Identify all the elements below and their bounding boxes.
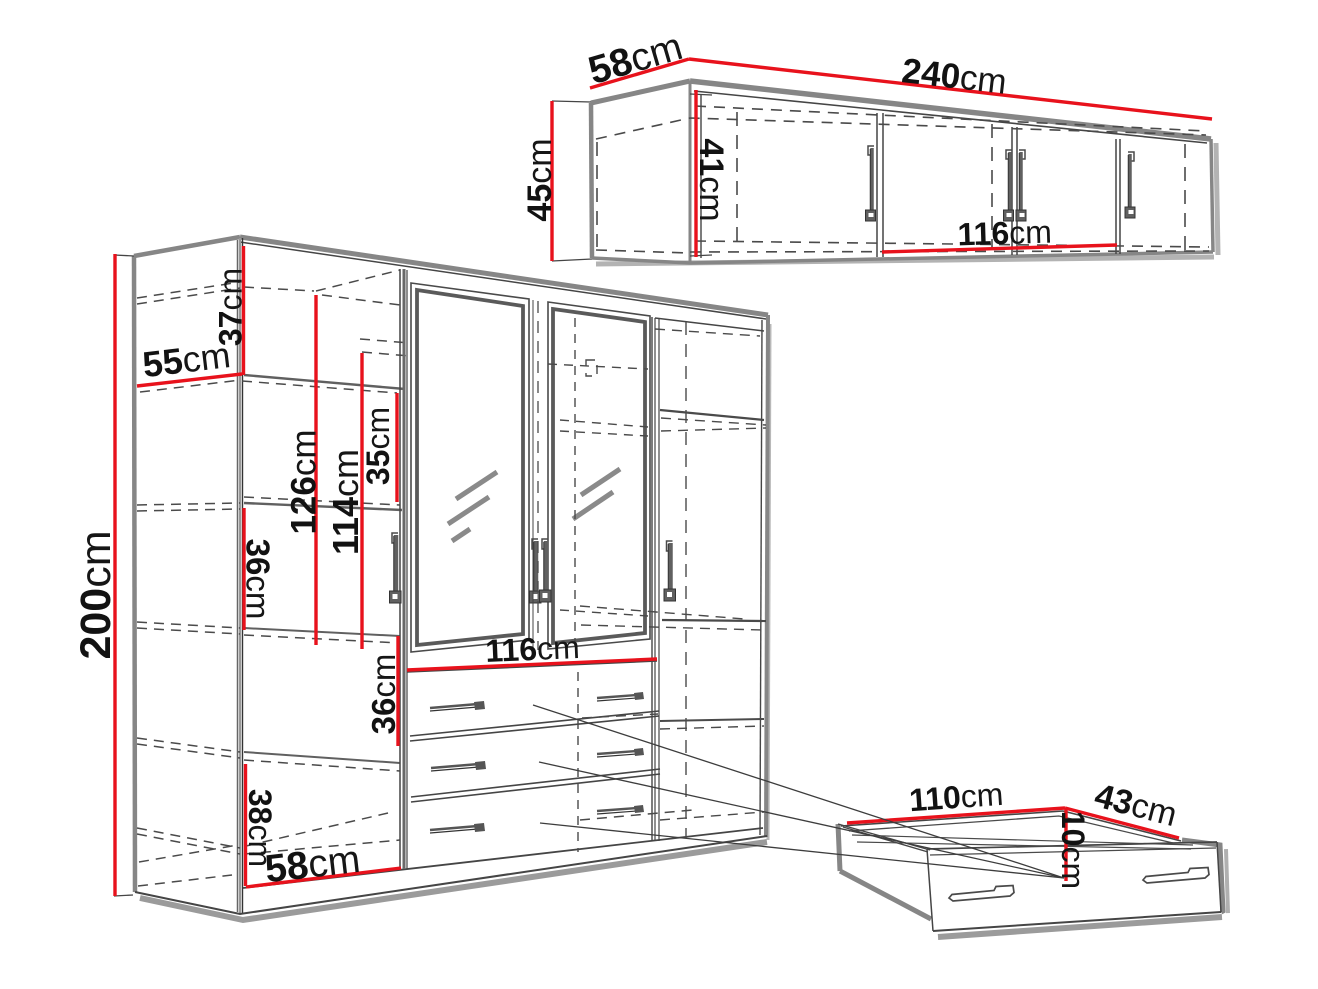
svg-text:116cm: 116cm (957, 214, 1052, 253)
svg-text:35cm: 35cm (360, 407, 396, 485)
svg-text:36cm: 36cm (365, 654, 402, 735)
svg-text:116cm: 116cm (485, 629, 581, 669)
svg-text:110cm: 110cm (908, 776, 1005, 818)
svg-text:41cm: 41cm (692, 138, 730, 221)
svg-text:126cm: 126cm (285, 429, 324, 534)
svg-text:200cm: 200cm (72, 530, 120, 659)
svg-text:37cm: 37cm (213, 268, 249, 346)
svg-text:36cm: 36cm (240, 539, 277, 620)
svg-text:45cm: 45cm (521, 138, 559, 221)
